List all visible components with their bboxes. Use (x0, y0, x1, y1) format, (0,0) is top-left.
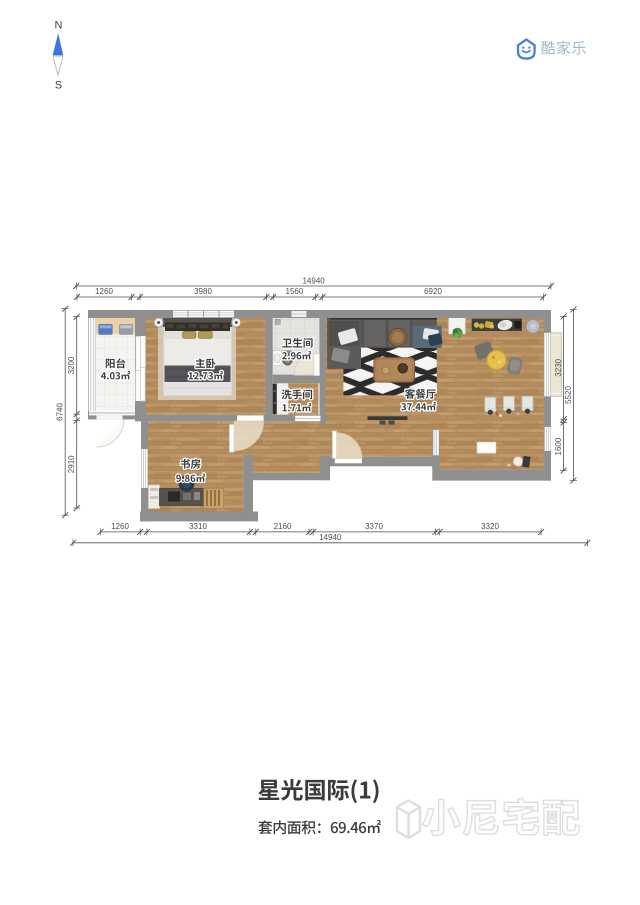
svg-text:14940: 14940 (319, 533, 342, 542)
svg-text:S: S (55, 80, 62, 92)
svg-text:1600: 1600 (554, 437, 563, 455)
svg-text:N: N (55, 20, 63, 32)
svg-text:1260: 1260 (111, 522, 129, 531)
svg-text:1260: 1260 (95, 287, 113, 296)
svg-text:3320: 3320 (481, 522, 499, 531)
svg-text:3370: 3370 (365, 522, 383, 531)
svg-text:5520: 5520 (564, 386, 573, 404)
svg-text:6920: 6920 (424, 287, 442, 296)
svg-text:3200: 3200 (67, 356, 76, 374)
svg-text:3980: 3980 (194, 287, 212, 296)
svg-text:2910: 2910 (67, 455, 76, 473)
svg-text:3230: 3230 (554, 358, 563, 376)
svg-text:6740: 6740 (56, 403, 65, 421)
svg-text:1560: 1560 (286, 287, 304, 296)
svg-text:14940: 14940 (302, 277, 325, 286)
svg-text:2160: 2160 (274, 522, 292, 531)
svg-text:3310: 3310 (189, 522, 207, 531)
